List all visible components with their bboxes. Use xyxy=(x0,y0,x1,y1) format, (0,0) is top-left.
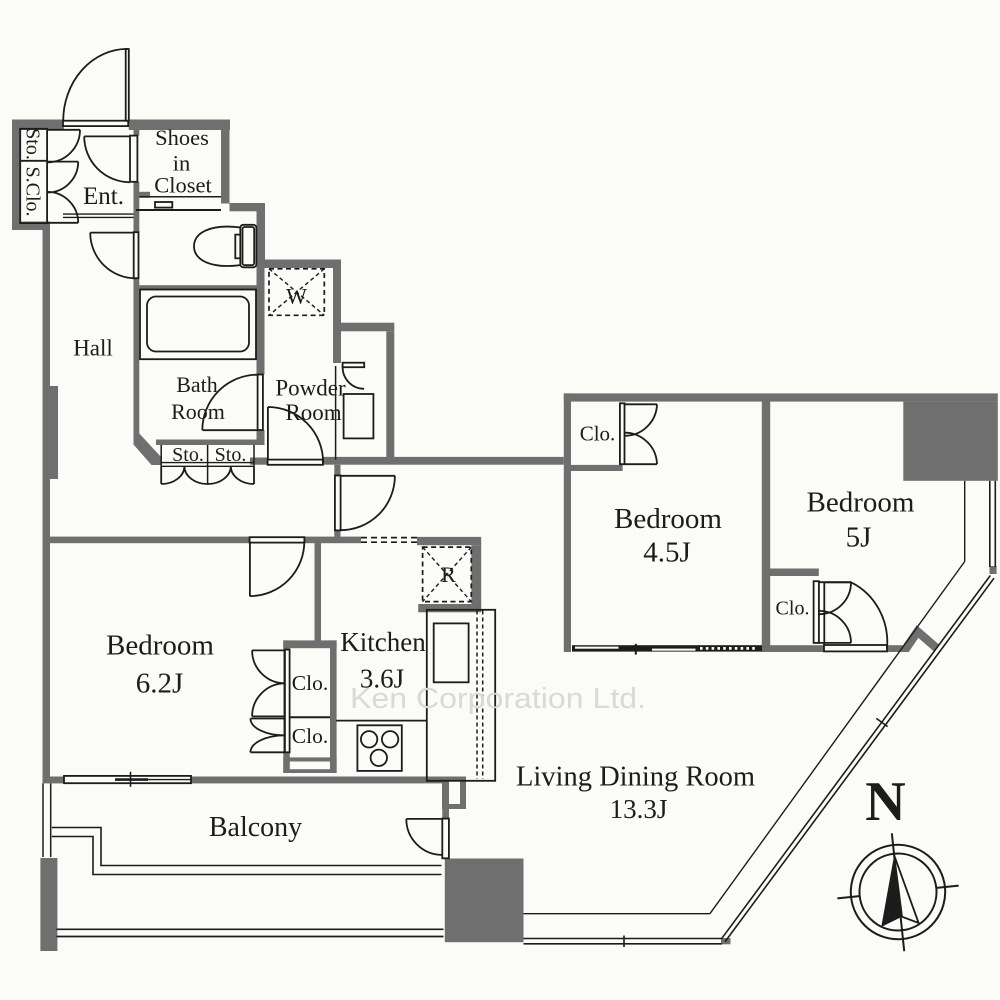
svg-text:Bath: Bath xyxy=(176,372,218,397)
svg-text:4.5J: 4.5J xyxy=(643,537,691,569)
svg-text:Ent.: Ent. xyxy=(83,183,124,210)
svg-text:Bedroom: Bedroom xyxy=(614,503,722,535)
svg-text:Sto.: Sto. xyxy=(22,128,44,160)
svg-text:Clo.: Clo. xyxy=(292,724,328,748)
svg-text:5J: 5J xyxy=(846,522,872,554)
svg-text:13.3J: 13.3J xyxy=(610,794,668,824)
svg-text:Living Dining Room: Living Dining Room xyxy=(516,762,755,793)
svg-text:Kitchen: Kitchen xyxy=(340,627,426,657)
svg-text:Hall: Hall xyxy=(73,336,113,361)
svg-text:Clo.: Clo. xyxy=(776,597,810,619)
svg-text:Sto.: Sto. xyxy=(215,444,247,466)
svg-text:3.6J: 3.6J xyxy=(360,664,404,694)
svg-text:6.2J: 6.2J xyxy=(136,668,184,700)
svg-text:Clo.: Clo. xyxy=(292,671,328,695)
svg-text:R: R xyxy=(441,562,456,587)
svg-text:Powder: Powder xyxy=(275,376,346,401)
svg-text:Room: Room xyxy=(171,399,225,424)
svg-text:Sto.: Sto. xyxy=(172,444,204,466)
svg-text:Room: Room xyxy=(285,400,341,425)
svg-text:Shoes: Shoes xyxy=(155,125,209,150)
svg-text:W: W xyxy=(286,284,307,309)
svg-text:Clo.: Clo. xyxy=(580,422,616,446)
svg-text:Bedroom: Bedroom xyxy=(807,487,915,519)
svg-text:Closet: Closet xyxy=(154,173,212,198)
svg-text:Bedroom: Bedroom xyxy=(106,630,214,662)
svg-text:N: N xyxy=(865,771,905,833)
svg-text:S.Clo.: S.Clo. xyxy=(22,166,44,216)
svg-text:Balcony: Balcony xyxy=(209,812,302,843)
